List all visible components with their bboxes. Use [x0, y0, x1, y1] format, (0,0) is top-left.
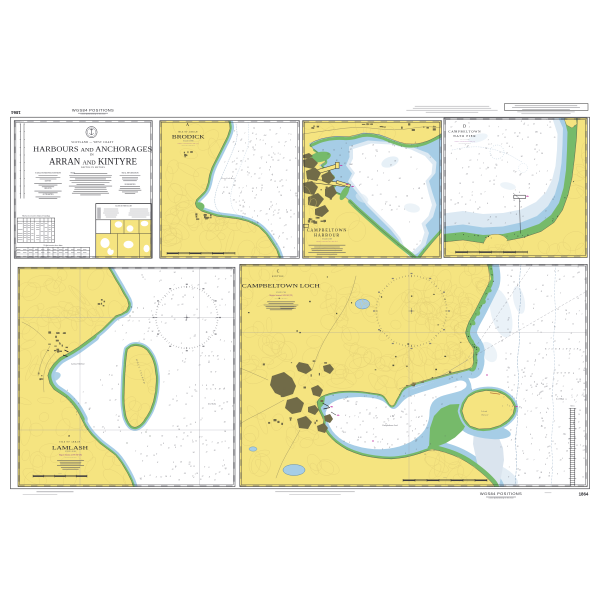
svg-text:AUTHORITIES: AUTHORITIES	[42, 193, 53, 196]
svg-text:23: 23	[513, 282, 515, 284]
svg-text:27: 27	[260, 211, 262, 213]
svg-text:15: 15	[514, 206, 516, 208]
svg-text:13: 13	[140, 454, 142, 456]
svg-text:34: 34	[240, 160, 242, 163]
svg-text:11: 11	[209, 476, 211, 478]
svg-text:O F: O F	[210, 372, 217, 374]
svg-text:11: 11	[247, 167, 249, 169]
svg-text:7: 7	[465, 145, 466, 147]
svg-text:27: 27	[547, 446, 549, 448]
svg-text:27: 27	[455, 223, 457, 225]
svg-text:12: 12	[252, 133, 254, 135]
svg-text:4: 4	[195, 421, 196, 424]
svg-text:27: 27	[276, 134, 278, 136]
svg-text:15: 15	[153, 455, 155, 457]
svg-text:13: 13	[186, 426, 188, 428]
svg-text:KINTYRE: KINTYRE	[272, 276, 284, 278]
svg-text:18: 18	[192, 271, 194, 273]
svg-text:12: 12	[152, 315, 154, 317]
svg-text:13: 13	[171, 316, 173, 318]
svg-text:11: 11	[206, 385, 208, 387]
svg-text:23: 23	[189, 462, 191, 464]
svg-text:12: 12	[218, 278, 220, 280]
svg-text:I s l a n d: I s l a n d	[481, 411, 487, 413]
svg-text:34: 34	[523, 371, 525, 374]
svg-text:15: 15	[479, 207, 481, 209]
svg-text:3: 3	[272, 174, 273, 176]
svg-text:11: 11	[183, 439, 185, 441]
svg-text:9: 9	[462, 168, 463, 170]
svg-text:5: 5	[423, 249, 424, 251]
svg-text:18: 18	[239, 205, 241, 207]
svg-text:5: 5	[500, 152, 501, 154]
svg-text:11: 11	[391, 445, 393, 447]
svg-text:23: 23	[356, 401, 358, 403]
svg-text:34: 34	[583, 369, 585, 372]
svg-text:27: 27	[282, 233, 284, 235]
svg-text:4: 4	[461, 376, 462, 379]
svg-text:5: 5	[145, 279, 146, 281]
svg-text:18: 18	[584, 390, 586, 392]
svg-text:12: 12	[536, 408, 538, 410]
svg-text:12: 12	[393, 418, 395, 420]
svg-text:7: 7	[251, 177, 252, 179]
svg-text:11: 11	[513, 170, 515, 172]
svg-text:9: 9	[451, 146, 452, 148]
svg-text:12: 12	[249, 141, 251, 143]
svg-text:18: 18	[214, 411, 216, 413]
svg-text:15: 15	[494, 168, 496, 170]
svg-text:9: 9	[559, 365, 560, 367]
svg-text:27: 27	[487, 168, 489, 170]
svg-text:18: 18	[116, 365, 118, 367]
svg-text:11: 11	[576, 445, 578, 447]
svg-text:13: 13	[374, 448, 376, 450]
svg-text:2: 2	[472, 191, 473, 193]
svg-text:D: D	[463, 123, 466, 128]
svg-text:9: 9	[557, 474, 558, 476]
svg-text:5: 5	[554, 420, 555, 422]
svg-text:2: 2	[563, 386, 564, 388]
svg-text:6: 6	[218, 359, 219, 361]
svg-text:23: 23	[497, 327, 499, 329]
svg-text:2: 2	[574, 413, 575, 415]
svg-text:5: 5	[349, 442, 350, 444]
svg-text:11: 11	[279, 191, 281, 193]
svg-text:23: 23	[583, 445, 585, 447]
svg-text:34: 34	[280, 194, 282, 197]
svg-text:34: 34	[477, 208, 479, 211]
svg-text:8: 8	[224, 187, 225, 189]
svg-text:12: 12	[270, 202, 272, 204]
svg-text:13: 13	[507, 382, 509, 384]
svg-text:12: 12	[206, 452, 208, 454]
svg-text:27: 27	[115, 399, 117, 401]
svg-text:11: 11	[541, 291, 543, 293]
svg-text:7: 7	[261, 174, 262, 176]
svg-text:23: 23	[205, 283, 207, 285]
svg-text:3: 3	[151, 340, 152, 342]
svg-text:18: 18	[554, 327, 556, 329]
svg-text:8: 8	[269, 169, 270, 171]
svg-text:34: 34	[399, 177, 401, 180]
svg-text:15: 15	[407, 424, 409, 426]
svg-text:13: 13	[510, 353, 512, 355]
svg-text:15: 15	[160, 444, 162, 446]
svg-text:12: 12	[414, 410, 416, 412]
svg-text:11: 11	[554, 369, 556, 371]
svg-text:11: 11	[223, 403, 225, 405]
svg-text:12: 12	[366, 432, 368, 434]
svg-text:23: 23	[410, 157, 412, 159]
svg-text:23: 23	[542, 358, 544, 360]
svg-text:13: 13	[269, 130, 271, 132]
svg-text:11: 11	[185, 320, 187, 322]
svg-text:12: 12	[333, 149, 335, 151]
svg-text:34: 34	[466, 173, 468, 176]
svg-text:7: 7	[501, 144, 502, 146]
svg-text:27: 27	[241, 170, 243, 172]
svg-text:11: 11	[532, 374, 534, 376]
svg-text:11: 11	[112, 388, 114, 390]
svg-text:2: 2	[502, 160, 503, 162]
svg-text:7: 7	[195, 474, 196, 476]
svg-text:3: 3	[83, 392, 84, 394]
svg-text:27: 27	[154, 303, 156, 305]
svg-text:34: 34	[528, 183, 530, 186]
svg-text:3: 3	[422, 436, 423, 438]
svg-text:15: 15	[424, 454, 426, 456]
svg-text:15: 15	[514, 375, 516, 377]
svg-text:27: 27	[176, 401, 178, 403]
svg-text:2: 2	[223, 460, 224, 462]
svg-text:18: 18	[500, 336, 502, 338]
svg-text:34: 34	[510, 275, 512, 278]
svg-text:15: 15	[343, 441, 345, 443]
svg-text:27: 27	[424, 395, 426, 397]
svg-text:27: 27	[277, 213, 279, 215]
svg-text:12: 12	[193, 466, 195, 468]
svg-text:23: 23	[194, 336, 196, 338]
svg-text:13: 13	[511, 270, 513, 272]
svg-text:5: 5	[355, 429, 356, 431]
svg-text:12: 12	[559, 426, 561, 428]
svg-text:5: 5	[456, 159, 457, 161]
svg-text:3: 3	[236, 202, 237, 204]
svg-text:2: 2	[572, 397, 573, 399]
svg-text:12: 12	[232, 171, 234, 173]
svg-text:15: 15	[230, 275, 232, 277]
svg-text:15: 15	[343, 399, 345, 401]
svg-text:4: 4	[257, 215, 258, 218]
svg-text:23: 23	[505, 358, 507, 360]
svg-text:13: 13	[367, 177, 369, 179]
svg-text:34: 34	[391, 209, 393, 212]
svg-text:12: 12	[180, 445, 182, 447]
svg-text:12: 12	[199, 437, 201, 439]
svg-text:6: 6	[238, 151, 239, 153]
svg-text:18: 18	[536, 384, 538, 386]
svg-text:13: 13	[495, 217, 497, 219]
svg-text:(Inch Bank): (Inch Bank)	[208, 403, 216, 406]
svg-text:18: 18	[87, 429, 89, 431]
svg-text:13: 13	[286, 212, 288, 214]
svg-text:7: 7	[465, 211, 466, 213]
svg-text:5: 5	[255, 145, 256, 147]
svg-text:23: 23	[542, 421, 544, 423]
svg-text:12: 12	[434, 450, 436, 452]
svg-text:23: 23	[234, 185, 236, 187]
svg-text:27: 27	[228, 292, 230, 294]
svg-text:ISLE OF ARRAN: ISLE OF ARRAN	[59, 440, 80, 443]
svg-text:18: 18	[182, 304, 184, 306]
svg-text:34: 34	[457, 201, 459, 204]
svg-text:5: 5	[290, 190, 291, 192]
svg-text:5: 5	[539, 171, 540, 173]
svg-text:15: 15	[504, 137, 506, 139]
svg-text:23: 23	[185, 404, 187, 406]
svg-text:18: 18	[573, 276, 575, 278]
svg-text:34: 34	[168, 373, 170, 376]
svg-text:18: 18	[360, 437, 362, 439]
svg-text:18: 18	[332, 395, 334, 397]
svg-text:34: 34	[524, 472, 526, 475]
svg-text:12: 12	[465, 204, 467, 206]
svg-text:5: 5	[569, 358, 570, 360]
svg-text:11: 11	[157, 462, 159, 464]
svg-text:8: 8	[508, 387, 509, 389]
svg-text:DEPTHS IN METRES: DEPTHS IN METRES	[182, 145, 195, 147]
svg-text:13: 13	[524, 414, 526, 416]
svg-text:12: 12	[364, 441, 366, 443]
svg-text:18: 18	[243, 206, 245, 208]
svg-text:34: 34	[517, 135, 519, 138]
svg-text:15: 15	[221, 299, 223, 301]
svg-text:8: 8	[271, 180, 272, 182]
svg-text:13: 13	[549, 121, 551, 123]
svg-text:13: 13	[342, 431, 344, 433]
svg-text:12: 12	[174, 319, 176, 321]
svg-text:15: 15	[398, 206, 400, 208]
svg-text:5: 5	[182, 353, 183, 355]
svg-text:13: 13	[514, 132, 516, 134]
svg-text:6: 6	[78, 403, 79, 405]
svg-text:18: 18	[541, 320, 543, 322]
svg-text:12: 12	[141, 274, 143, 276]
svg-text:2: 2	[271, 224, 272, 226]
svg-text:11: 11	[576, 379, 578, 381]
svg-text:34: 34	[252, 187, 254, 190]
svg-text:18: 18	[548, 476, 550, 478]
svg-text:18: 18	[507, 293, 509, 295]
svg-text:15: 15	[196, 309, 198, 311]
svg-text:5: 5	[509, 405, 510, 407]
svg-text:12: 12	[191, 396, 193, 398]
svg-text:DEPTHS IN METRES: DEPTHS IN METRES	[275, 298, 288, 300]
svg-text:11: 11	[294, 214, 296, 216]
svg-text:6: 6	[564, 276, 565, 278]
svg-text:5: 5	[263, 140, 264, 142]
svg-text:23: 23	[519, 470, 521, 472]
svg-text:23: 23	[568, 339, 570, 341]
svg-text:SATELLITE-DERIVED POSITIONS: SATELLITE-DERIVED POSITIONS	[35, 172, 61, 175]
svg-text:7: 7	[388, 420, 389, 422]
svg-text:34: 34	[178, 428, 180, 431]
svg-text:27: 27	[219, 472, 221, 474]
svg-text:34: 34	[423, 183, 425, 186]
svg-text:11: 11	[70, 402, 72, 404]
svg-text:18: 18	[394, 161, 396, 163]
svg-text:12: 12	[247, 159, 249, 161]
svg-text:11: 11	[519, 192, 521, 194]
svg-text:9: 9	[89, 409, 90, 411]
svg-text:DEPTHS IN METRES: DEPTHS IN METRES	[64, 457, 76, 459]
svg-text:7: 7	[563, 402, 564, 404]
svg-text:9: 9	[225, 278, 226, 280]
svg-text:TIDAL INFORMATION: TIDAL INFORMATION	[121, 172, 139, 175]
svg-text:11: 11	[160, 280, 162, 282]
svg-text:34: 34	[152, 330, 154, 333]
svg-text:2: 2	[192, 440, 193, 442]
svg-text:SCOTLAND — WEST COAST: SCOTLAND — WEST COAST	[71, 141, 113, 144]
svg-text:34: 34	[217, 442, 219, 445]
svg-text:4: 4	[137, 306, 138, 309]
svg-text:13: 13	[296, 195, 298, 197]
svg-text:8: 8	[507, 370, 508, 372]
svg-text:7: 7	[174, 284, 175, 286]
svg-text:7: 7	[144, 334, 145, 336]
svg-text:27: 27	[515, 172, 517, 174]
svg-text:6: 6	[572, 455, 573, 457]
svg-text:6: 6	[584, 450, 585, 452]
svg-text:12: 12	[283, 157, 285, 159]
svg-text:5: 5	[139, 341, 140, 343]
svg-text:27: 27	[487, 219, 489, 221]
svg-text:23: 23	[515, 439, 517, 441]
svg-text:34: 34	[536, 144, 538, 147]
svg-text:27: 27	[198, 284, 200, 286]
svg-text:12: 12	[569, 353, 571, 355]
svg-text:27: 27	[285, 142, 287, 144]
svg-text:7: 7	[366, 396, 367, 398]
svg-text:34: 34	[526, 389, 528, 392]
svg-text:K I L B R A N N A N: K I L B R A N N A N	[544, 348, 579, 351]
svg-text:27: 27	[467, 146, 469, 148]
svg-text:23: 23	[161, 315, 163, 317]
svg-text:13: 13	[195, 441, 197, 443]
svg-text:9: 9	[265, 144, 266, 146]
svg-text:5: 5	[209, 361, 210, 363]
svg-text:12: 12	[404, 444, 406, 446]
svg-text:18: 18	[513, 200, 515, 202]
svg-text:13: 13	[470, 160, 472, 162]
svg-text:18: 18	[560, 391, 562, 393]
svg-text:15: 15	[205, 440, 207, 442]
svg-text:27: 27	[350, 149, 352, 151]
svg-text:27: 27	[549, 389, 551, 391]
svg-text:11: 11	[583, 458, 585, 460]
svg-text:11: 11	[143, 308, 145, 310]
svg-text:2: 2	[290, 140, 291, 142]
svg-text:F I R T H: F I R T H	[199, 356, 219, 358]
svg-text:LAMLASH: LAMLASH	[52, 446, 88, 452]
svg-text:5: 5	[471, 389, 472, 391]
svg-text:13: 13	[111, 375, 113, 377]
svg-text:13: 13	[455, 386, 457, 388]
svg-text:11: 11	[150, 475, 152, 477]
svg-text:8: 8	[157, 336, 158, 338]
svg-text:DEPTHS IN METRES: DEPTHS IN METRES	[81, 167, 106, 169]
svg-text:23: 23	[541, 426, 543, 428]
svg-text:34: 34	[228, 192, 230, 195]
svg-text:27: 27	[544, 387, 546, 389]
svg-text:11: 11	[389, 447, 391, 449]
svg-text:9: 9	[566, 399, 567, 401]
svg-text:23: 23	[527, 361, 529, 363]
svg-text:9: 9	[541, 332, 542, 334]
svg-text:34: 34	[224, 421, 226, 424]
svg-text:18: 18	[149, 322, 151, 324]
svg-text:7: 7	[488, 140, 489, 142]
svg-text:11: 11	[164, 304, 166, 306]
svg-text:12: 12	[194, 389, 196, 391]
svg-text:4: 4	[202, 352, 203, 355]
svg-text:9: 9	[154, 297, 155, 299]
svg-text:12: 12	[278, 210, 280, 212]
svg-text:23: 23	[568, 438, 570, 440]
svg-text:13: 13	[339, 155, 341, 157]
svg-text:2: 2	[508, 285, 509, 287]
svg-text:15: 15	[186, 393, 188, 395]
svg-text:34: 34	[540, 471, 542, 474]
svg-text:18: 18	[161, 435, 163, 437]
svg-text:13: 13	[289, 160, 291, 162]
svg-text:12: 12	[583, 431, 585, 433]
svg-text:4: 4	[470, 369, 471, 372]
svg-text:15: 15	[579, 410, 581, 412]
svg-text:9: 9	[555, 443, 556, 445]
svg-text:4: 4	[347, 396, 348, 399]
svg-text:23: 23	[487, 299, 489, 301]
svg-text:7: 7	[123, 340, 124, 342]
svg-text:34: 34	[533, 324, 535, 327]
svg-text:11: 11	[479, 154, 481, 156]
svg-text:23: 23	[410, 396, 412, 398]
svg-text:34: 34	[565, 309, 567, 312]
svg-text:27: 27	[233, 141, 235, 143]
svg-text:D a v a a r: D a v a a r	[481, 415, 489, 417]
svg-text:11: 11	[432, 398, 434, 400]
svg-text:23: 23	[532, 175, 534, 177]
svg-text:5: 5	[169, 370, 170, 372]
svg-text:12: 12	[190, 466, 192, 468]
svg-text:15: 15	[521, 369, 523, 371]
svg-text:9: 9	[571, 448, 572, 450]
svg-text:2: 2	[551, 468, 552, 470]
svg-text:18: 18	[497, 136, 499, 138]
svg-text:23: 23	[508, 317, 510, 319]
svg-text:3: 3	[477, 159, 478, 161]
svg-text:15: 15	[271, 157, 273, 159]
svg-text:34: 34	[177, 425, 179, 428]
svg-text:13: 13	[259, 178, 261, 180]
svg-text:23: 23	[85, 402, 87, 404]
svg-text:13: 13	[423, 425, 425, 427]
svg-text:12: 12	[524, 376, 526, 378]
svg-text:23: 23	[254, 150, 256, 152]
svg-text:15: 15	[348, 151, 350, 153]
svg-text:15: 15	[187, 436, 189, 438]
